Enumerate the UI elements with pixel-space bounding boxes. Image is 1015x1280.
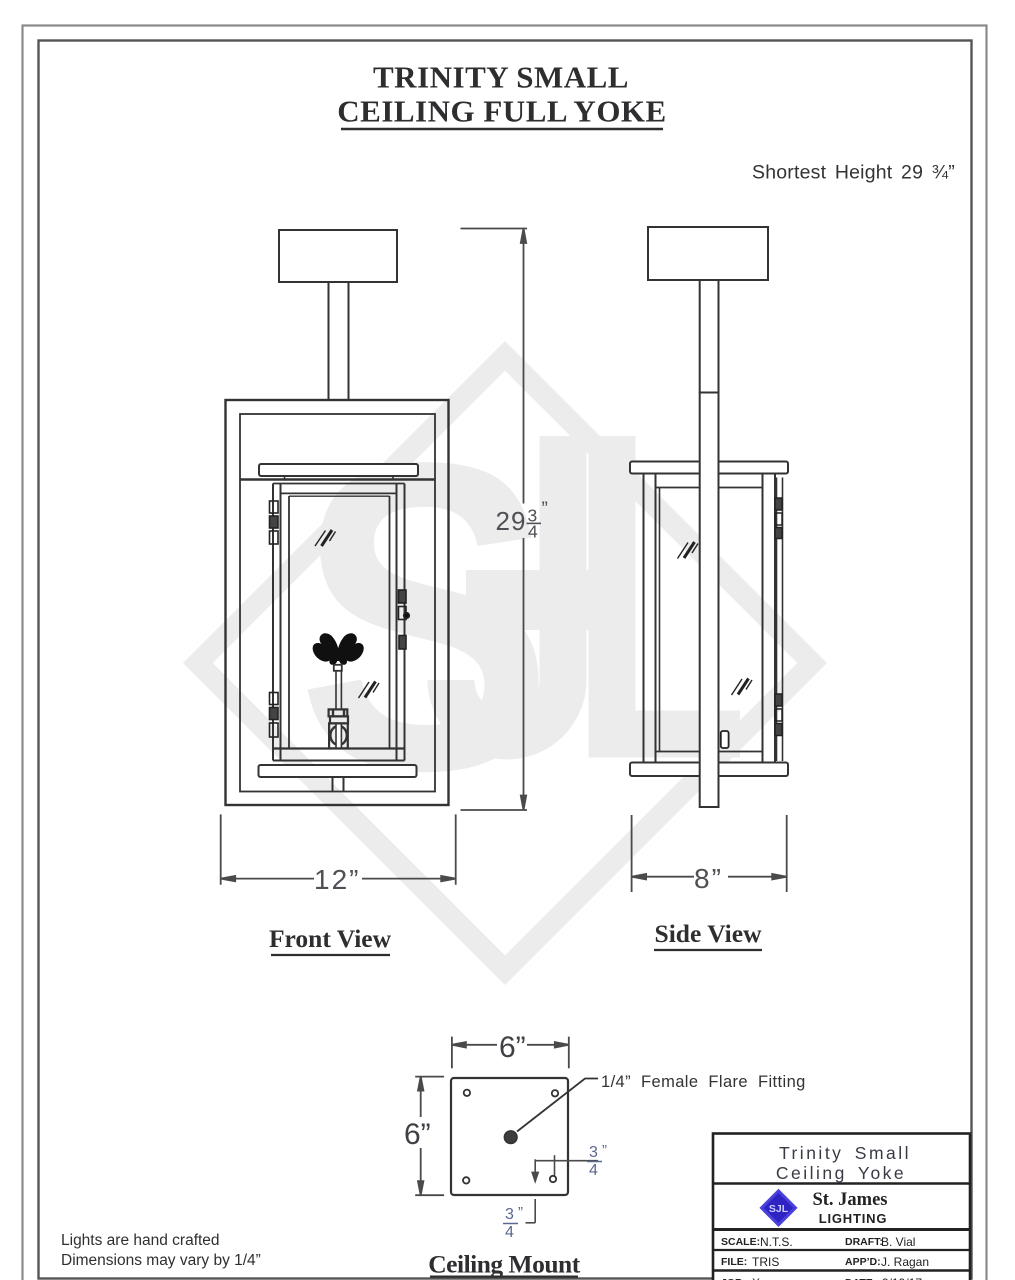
svg-text:Front View: Front View: [269, 924, 392, 953]
svg-text:J. Ragan: J. Ragan: [881, 1255, 929, 1269]
svg-text:6”: 6”: [499, 1031, 526, 1064]
svg-text:SJL: SJL: [769, 1203, 789, 1215]
svg-text:”: ”: [602, 1142, 607, 1159]
svg-text:TRIS: TRIS: [752, 1255, 779, 1269]
svg-text:X: X: [752, 1276, 760, 1280]
svg-text:9/19/17: 9/19/17: [882, 1276, 922, 1280]
svg-text:N.T.S.: N.T.S.: [760, 1235, 793, 1249]
svg-text:29: 29: [496, 506, 527, 536]
svg-text:St. James: St. James: [812, 1190, 887, 1210]
svg-text:Trinity Small: Trinity Small: [779, 1143, 911, 1163]
svg-text:LIGHTING: LIGHTING: [819, 1211, 888, 1226]
svg-text:”: ”: [542, 499, 548, 520]
svg-text:Shortest Height 29 ¾”: Shortest Height 29 ¾”: [752, 162, 955, 184]
svg-text:8”: 8”: [694, 863, 723, 894]
svg-text:DRAFT:: DRAFT:: [845, 1236, 883, 1248]
svg-text:B. Vial: B. Vial: [881, 1235, 915, 1249]
svg-text:3: 3: [505, 1206, 514, 1223]
svg-text:6”: 6”: [404, 1118, 431, 1151]
svg-text:4: 4: [589, 1162, 598, 1179]
svg-text:4: 4: [528, 522, 538, 542]
svg-text:4: 4: [505, 1224, 514, 1241]
svg-text:”: ”: [518, 1204, 523, 1221]
svg-text:Ceiling Yoke: Ceiling Yoke: [776, 1163, 906, 1183]
svg-text:CEILING FULL YOKE: CEILING FULL YOKE: [337, 94, 666, 129]
svg-text:3: 3: [589, 1144, 598, 1161]
svg-text:Dimensions may vary by 1/4”: Dimensions may vary by 1/4”: [61, 1252, 261, 1269]
svg-text:12”: 12”: [314, 864, 360, 895]
svg-text:1/4” Female Flare Fitting: 1/4” Female Flare Fitting: [601, 1073, 806, 1091]
svg-text:TRINITY SMALL: TRINITY SMALL: [373, 60, 629, 95]
svg-text:APP’D:: APP’D:: [845, 1256, 881, 1268]
svg-text:Ceiling Mount: Ceiling Mount: [428, 1250, 580, 1279]
svg-text:FILE:: FILE:: [721, 1256, 747, 1268]
svg-text:Lights are hand crafted: Lights are hand crafted: [61, 1232, 220, 1249]
svg-text:SCALE:: SCALE:: [721, 1236, 760, 1248]
svg-text:Side View: Side View: [655, 919, 763, 948]
